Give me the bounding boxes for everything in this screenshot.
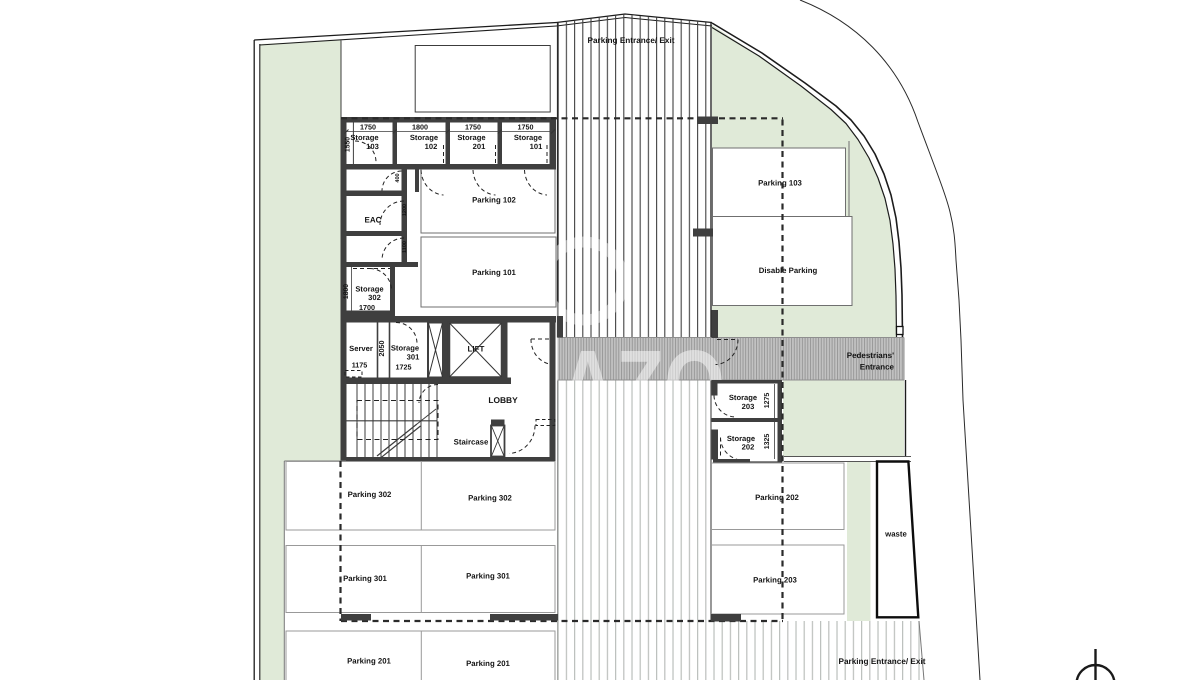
svg-text:1750: 1750: [360, 123, 376, 132]
svg-text:1275: 1275: [764, 393, 771, 409]
svg-text:Parking 301: Parking 301: [343, 574, 387, 583]
svg-text:EAC: EAC: [365, 216, 382, 225]
svg-text:302: 302: [368, 293, 381, 302]
svg-text:1175: 1175: [352, 361, 368, 370]
svg-text:Parking 201: Parking 201: [347, 657, 391, 666]
svg-text:Parking 302: Parking 302: [468, 494, 512, 503]
svg-text:1700: 1700: [359, 303, 375, 312]
svg-text:Parking 201: Parking 201: [466, 659, 510, 668]
svg-text:Entrance: Entrance: [860, 363, 895, 372]
svg-text:LIFT: LIFT: [468, 345, 485, 354]
svg-text:Parking 202: Parking 202: [755, 493, 799, 502]
svg-text:Server: Server: [349, 344, 373, 353]
svg-text:Parking 102: Parking 102: [472, 196, 516, 205]
svg-text:Storage: Storage: [729, 393, 757, 402]
svg-text:203: 203: [742, 402, 755, 411]
svg-text:Parking 302: Parking 302: [348, 490, 392, 499]
svg-text:1800: 1800: [412, 123, 428, 132]
svg-text:Parking Entrance/ Exit: Parking Entrance/ Exit: [588, 36, 675, 45]
svg-text:Disable Parking: Disable Parking: [759, 266, 818, 275]
svg-text:Storage: Storage: [391, 344, 419, 353]
svg-text:201: 201: [473, 142, 486, 151]
svg-text:1750: 1750: [465, 123, 481, 132]
svg-text:Storage: Storage: [457, 133, 485, 142]
svg-text:Parking Entrance/ Exit: Parking Entrance/ Exit: [839, 657, 926, 666]
svg-text:1750: 1750: [518, 123, 534, 132]
svg-text:Pedestrians': Pedestrians': [847, 351, 894, 360]
svg-text:Parking 301: Parking 301: [466, 572, 510, 581]
svg-text:Storage: Storage: [350, 133, 378, 142]
svg-text:LOBBY: LOBBY: [488, 395, 518, 405]
svg-text:Parking 203: Parking 203: [753, 576, 797, 585]
svg-text:1800: 1800: [343, 284, 350, 299]
svg-text:Storage: Storage: [514, 133, 542, 142]
svg-text:waste: waste: [884, 530, 907, 539]
svg-text:1725: 1725: [396, 363, 412, 372]
svg-text:1200: 1200: [402, 204, 408, 216]
svg-text:1100: 1100: [402, 241, 408, 253]
svg-text:202: 202: [742, 443, 755, 452]
svg-text:2050: 2050: [377, 341, 386, 357]
svg-text:101: 101: [530, 142, 543, 151]
svg-text:Parking 103: Parking 103: [758, 179, 802, 188]
svg-text:102: 102: [425, 142, 438, 151]
svg-text:1325: 1325: [764, 434, 771, 450]
svg-text:Storage: Storage: [410, 133, 438, 142]
svg-text:400: 400: [395, 173, 401, 182]
svg-text:Parking 101: Parking 101: [472, 268, 516, 277]
svg-text:301: 301: [407, 353, 420, 362]
svg-text:Staircase: Staircase: [454, 438, 489, 447]
svg-text:103: 103: [366, 142, 379, 151]
